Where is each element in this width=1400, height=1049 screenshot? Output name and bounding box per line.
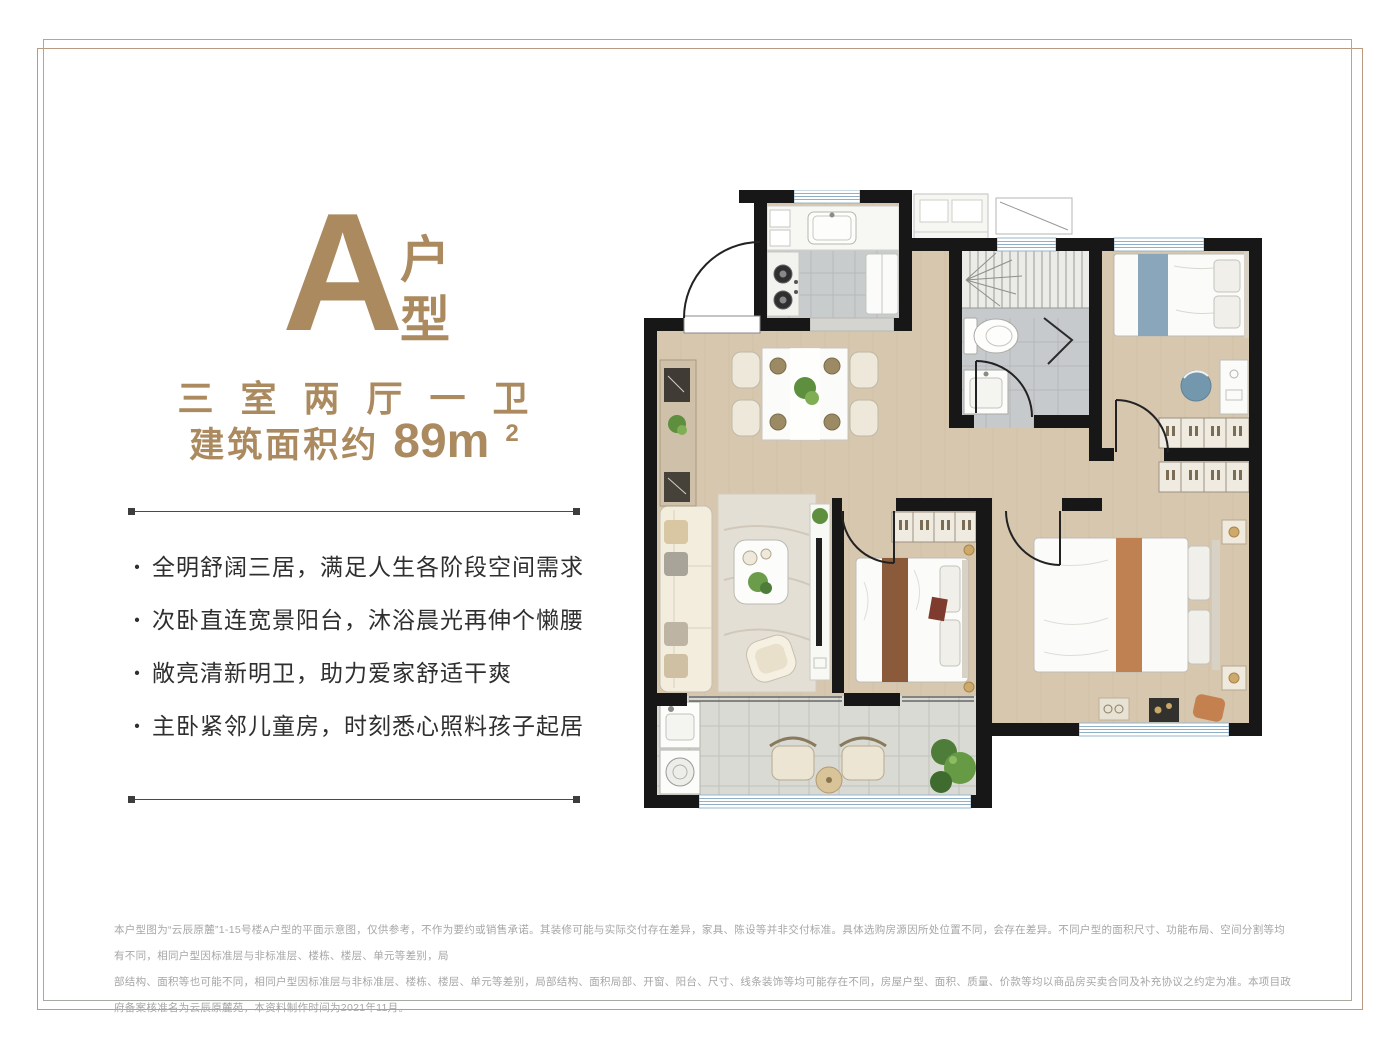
window <box>794 190 860 203</box>
window <box>997 238 1056 251</box>
sofa <box>660 506 712 692</box>
area-value: 89m <box>393 414 489 469</box>
balcony <box>657 696 976 808</box>
stove-icon <box>767 252 799 316</box>
dining-chair <box>732 352 760 388</box>
dining-chair <box>732 400 760 436</box>
double-bed <box>856 558 968 682</box>
window <box>1079 723 1229 736</box>
bullet-icon: · <box>133 607 142 634</box>
kitchen <box>767 206 899 331</box>
nightstand <box>964 545 974 555</box>
area-superscript: 2 <box>505 420 518 448</box>
coffee-table <box>734 540 788 604</box>
divider-square-icon <box>128 796 135 803</box>
tv-cabinet <box>810 504 830 680</box>
second-bedroom <box>856 545 974 692</box>
feature-item: ·敞亮清新明卫，助力爱家舒适干爽 <box>133 654 584 707</box>
kitchen-sink <box>808 212 856 244</box>
divider-square-icon <box>128 508 135 515</box>
nightstand <box>964 682 974 692</box>
window <box>699 795 971 808</box>
unit-type-letter: A <box>282 188 403 356</box>
toilet-icon <box>964 318 1018 354</box>
exterior-ledge <box>996 198 1072 234</box>
laundry-unit <box>660 702 700 794</box>
wardrobe <box>892 512 976 542</box>
entry-console <box>660 360 696 506</box>
disclaimer: 本户型图为“云辰原麓”1-15号楼A户型的平面示意图，仅供参考，不作为要约或销售… <box>114 917 1292 1021</box>
feature-item: ·次卧直连宽景阳台，沐浴晨光再伸个懒腰 <box>133 601 584 654</box>
fridge <box>866 254 898 314</box>
bullet-icon: · <box>133 554 142 581</box>
bathroom <box>962 251 1089 428</box>
kitchen-pass-counter <box>810 318 894 331</box>
feature-item: ·全明舒阔三居，满足人生各阶段空间需求 <box>133 548 584 601</box>
wardrobe <box>1159 418 1249 448</box>
single-bed <box>1114 252 1249 338</box>
dining-chair <box>850 352 878 388</box>
nightstand <box>1222 666 1246 690</box>
divider-bottom <box>128 796 580 803</box>
unit-type-label: 户型 <box>400 230 456 350</box>
bullet-icon: · <box>133 660 142 687</box>
balcony-table <box>816 767 842 793</box>
divider-square-icon <box>573 508 580 515</box>
divider-square-icon <box>573 796 580 803</box>
wardrobe <box>1159 462 1249 492</box>
desk <box>1220 360 1248 414</box>
window <box>1114 238 1204 251</box>
floor-plan <box>644 190 1262 820</box>
divider-top <box>128 508 580 515</box>
disclaimer-line-1: 本户型图为“云辰原麓”1-15号楼A户型的平面示意图，仅供参考，不作为要约或销售… <box>114 917 1292 969</box>
staircase <box>962 251 1089 308</box>
dining-chair <box>850 400 878 436</box>
desk-chair <box>1181 371 1211 401</box>
bathroom-sink <box>964 370 1008 414</box>
bullet-icon: · <box>133 713 142 740</box>
nightstand <box>1222 520 1246 544</box>
unit-area-text: 建筑面积约 89m2 <box>130 414 576 469</box>
feature-item: ·主卧紧邻儿童房，时刻悉心照料孩子起居 <box>133 707 584 760</box>
disclaimer-line-2: 部结构、面积等也可能不同，相同户型因标准层与非标准层、楼栋、楼层、单元等差别，局… <box>114 969 1292 1021</box>
area-prefix: 建筑面积约 <box>189 417 379 468</box>
plant-icon <box>812 508 828 524</box>
feature-list: ·全明舒阔三居，满足人生各阶段空间需求 ·次卧直连宽景阳台，沐浴晨光再伸个懒腰 … <box>133 548 584 760</box>
